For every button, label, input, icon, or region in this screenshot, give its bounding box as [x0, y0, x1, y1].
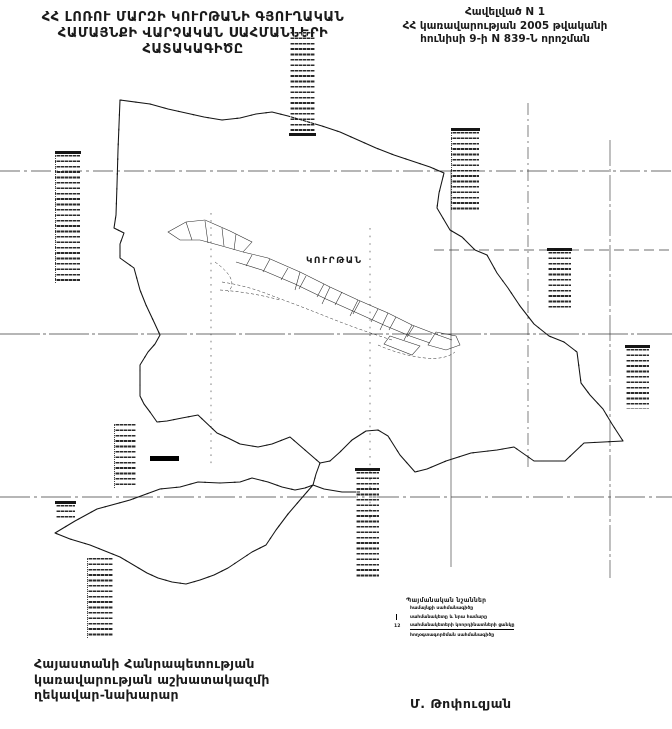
legend-item: համայնքի սահմանագիծը: [394, 606, 544, 611]
coordinate-table-north: [290, 32, 315, 132]
coordinate-table-southwest-upper: [114, 424, 136, 488]
scale-bar: [150, 456, 179, 461]
appendix-line2: ՀՀ կառավարության 2005 թվականի: [370, 20, 640, 34]
coordinate-table-west-small: [56, 505, 75, 521]
coordinate-table-northeast: [451, 132, 479, 210]
legend: Պայմանական նշաններ համայնքի սահմանագիծը …: [394, 598, 544, 642]
coordinate-table-southeast: [626, 349, 649, 409]
legend-item-label: սահմանակետը և նրա համարը: [410, 615, 487, 620]
legend-title: Պայմանական նշաններ: [406, 598, 544, 603]
legend-item: հողօգտագործման սահմանագիծը: [410, 633, 544, 638]
point-number-icon: 12: [394, 624, 407, 629]
village-parcel-network: [168, 220, 460, 358]
appendix-line3: հունիսի 9-ի N 839-Ն որոշման: [370, 33, 640, 47]
community-boundary: [55, 100, 623, 584]
coordinate-table-southwest-lower: [87, 558, 113, 638]
signatory-line1: Հայաստանի Հանրապետության: [34, 656, 334, 672]
legend-item: սահմանակետը և նրա համարը: [394, 615, 544, 620]
legend-item-label: համայնքի սահմանագիծը: [410, 606, 473, 611]
page-title-line1: ՀՀ ԼՈՌՈՒ ՄԱՐԶԻ ԿՈՒՐԹԱՆԻ ԳՅՈՒՂԱԿԱՆ: [28, 10, 358, 26]
grid-lines: [0, 103, 672, 578]
coordinate-table-south-center: [356, 472, 379, 578]
coordinate-table-east: [548, 252, 571, 310]
scanned-map-page: ՀՀ ԼՈՌՈՒ ՄԱՐԶԻ ԿՈՒՐԹԱՆԻ ԳՅՈՒՂԱԿԱՆ ՀԱՄԱՅՆ…: [0, 0, 672, 729]
appendix-note: Հավելված N 1 ՀՀ կառավարության 2005 թվակա…: [370, 6, 640, 47]
coordinate-table-west: [55, 155, 80, 283]
legend-item-label: հողօգտագործման սահմանագիծը: [410, 633, 494, 638]
boundary-point-icon: [394, 615, 407, 620]
appendix-line1: Հավելված N 1: [370, 6, 640, 20]
boundary-line-icon: [394, 606, 407, 611]
signatory-line3: ղեկավար-նախարար: [34, 687, 334, 703]
legend-item-label: սահմանակետերի կոորդինատների ցանկը: [410, 623, 514, 630]
signatory-title: Հայաստանի Հանրապետության կառավարության ա…: [34, 656, 334, 703]
legend-item: 12 սահմանակետերի կոորդինատների ցանկը: [394, 623, 544, 630]
signatory-line2: կառավարության աշխատակազմի: [34, 672, 334, 688]
signature-name: Մ. Թոփուզյան: [410, 696, 512, 711]
village-name-label: ԿՈՒՐԹԱՆ: [306, 256, 363, 266]
